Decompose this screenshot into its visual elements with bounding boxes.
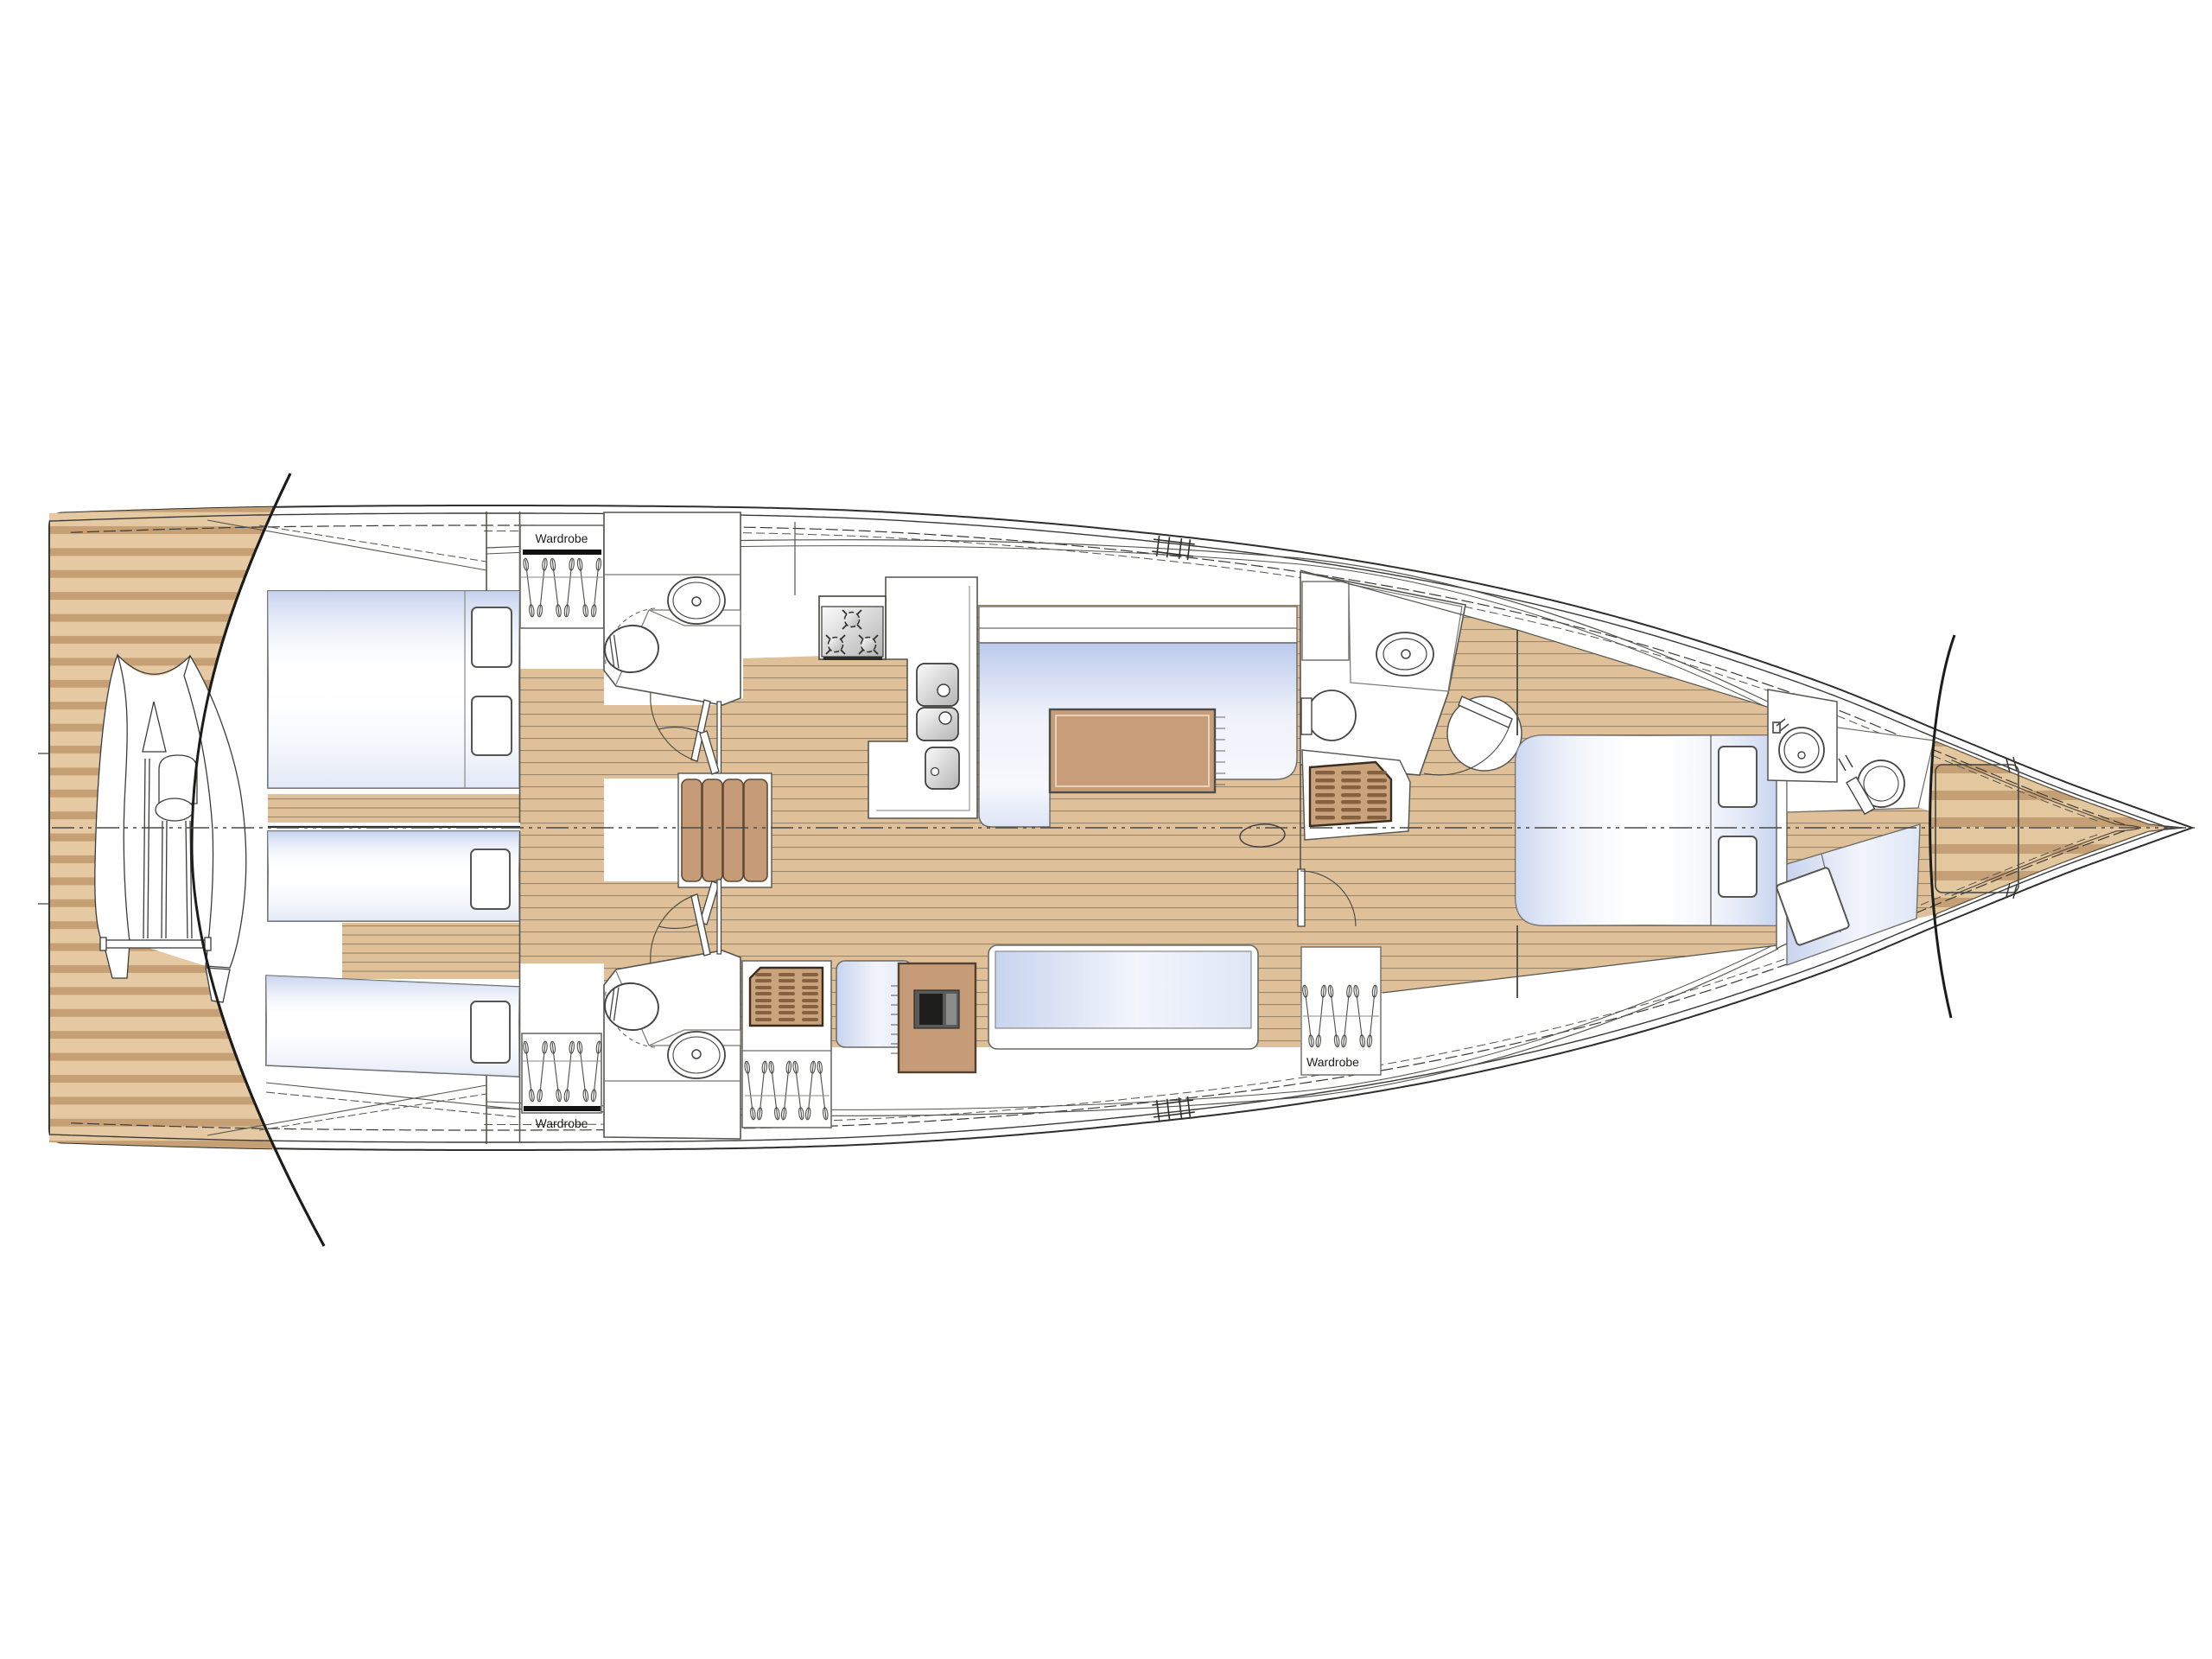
- svg-text:Wardrobe: Wardrobe: [536, 531, 588, 545]
- svg-text:Wardrobe: Wardrobe: [1306, 1055, 1359, 1069]
- svg-text:Wardrobe: Wardrobe: [536, 1116, 588, 1130]
